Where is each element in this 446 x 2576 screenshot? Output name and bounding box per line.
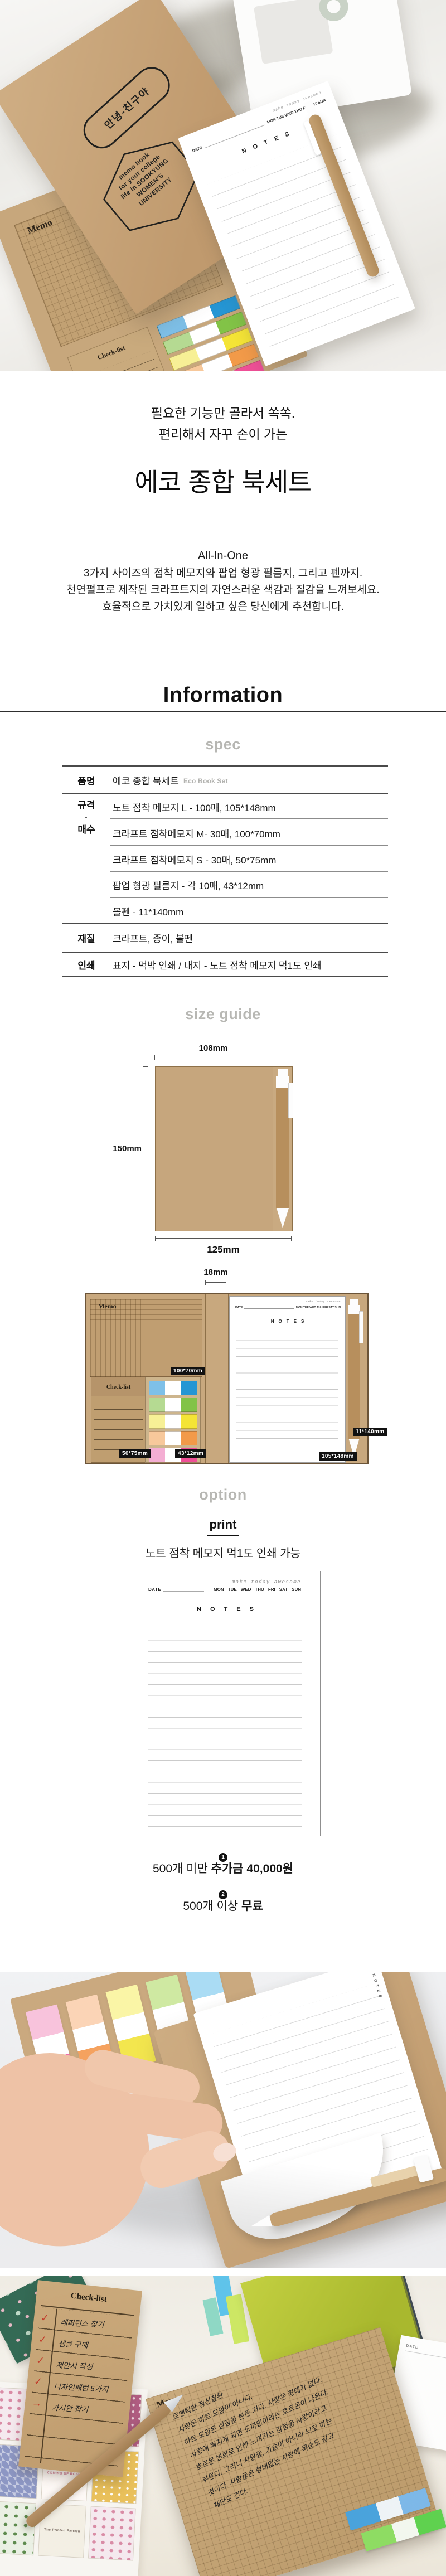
date-label: DATE — [192, 146, 203, 153]
flag-orange — [149, 1431, 197, 1445]
pricing-amount-2: 무료 — [241, 1900, 263, 1913]
spec-label-print: 인쇄 — [62, 958, 110, 972]
product-title: 에코 종합 북세트 — [0, 467, 446, 497]
spec-label-product: 품명 — [62, 773, 110, 787]
closed-book-diagram — [155, 1066, 293, 1231]
spec-size-row-5: 볼펜 - 11*140mm — [113, 904, 388, 918]
notes-title: NOTES — [230, 1319, 345, 1324]
size-tag-memo: 100*70mm — [171, 1367, 205, 1375]
desc-line-2: 천연펄프로 제작된 크라프트지의 자연스러운 색감과 질감을 느껴보세요. — [0, 582, 446, 599]
red-checkmark: ✓ — [38, 2334, 47, 2346]
hero-product-photo: Memo Check-list 안녕-친구야 — [0, 0, 446, 371]
red-checkmark: ✓ — [34, 2376, 42, 2388]
weekdays: MON TUE WED THU FRI SAT SUN — [296, 1306, 341, 1309]
notes-tagline: make today awesome — [306, 1300, 341, 1303]
size-tag-checklist: 50*75mm — [119, 1449, 151, 1458]
pen-slot-line — [347, 1294, 347, 1463]
table-subline — [110, 818, 388, 819]
table-subline — [110, 871, 388, 872]
preview-tagline: make today awesome — [232, 1579, 301, 1585]
table-line — [62, 765, 388, 767]
pricing-condition-1: 500개 미만 — [153, 1862, 211, 1875]
spec-size-row-4: 팝업 형광 필름지 - 각 10매, 43*12mm — [113, 878, 388, 892]
checklist-item: 제안서 작성 — [56, 2359, 93, 2371]
product-description: 3가지 사이즈의 점착 메모지와 팝업 형광 필름지, 그리고 펜까지. 천연펄… — [0, 565, 446, 615]
memo-pad-title: Memo — [26, 217, 54, 236]
memo-pad-title: Memo — [98, 1302, 117, 1311]
date-underline — [163, 1591, 204, 1592]
size-guide-heading: size guide — [0, 1006, 446, 1023]
desc-line-3: 효율적으로 가치있게 일하고 싶은 당신에게 추천합니다. — [0, 599, 446, 615]
date-label: DATE — [148, 1587, 161, 1592]
spec-size-row-3: 크라프트 점착메모지 S - 30매, 50*75mm — [113, 852, 388, 866]
product-name-en: Eco Book Set — [183, 777, 228, 785]
spec-size-row-2: 크라프트 점착메모지 M- 30매, 100*70mm — [113, 826, 388, 840]
date-label: DATE — [235, 1306, 243, 1309]
checklist-item: 샘플 구매 — [58, 2337, 88, 2350]
table-line — [62, 976, 388, 977]
weekday-tue: TUE — [228, 1587, 237, 1592]
product-detail-page: Memo Check-list 안녕-친구야 — [0, 0, 446, 2576]
desc-line-1: 3가지 사이즈의 점착 메모지와 팝업 형광 필름지, 그리고 펜까지. — [0, 565, 446, 582]
weekday-fri: FRI — [268, 1587, 275, 1592]
date-label: DATE — [406, 2344, 419, 2350]
pricing-badge-1: 1 — [0, 1851, 446, 1862]
preview-notes-title: NOTES — [130, 1606, 320, 1613]
notes-date-row: DATE MON TUE WED THU FRI SAT SUN — [235, 1306, 341, 1309]
spec-label-material: 재질 — [62, 931, 110, 945]
information-heading: Information — [0, 683, 446, 707]
pricing-line-2: 500개 이상 무료 — [0, 1899, 446, 1914]
print-preview-notepad: make today awesome DATE MON TUE WED THU … — [130, 1571, 321, 1836]
spec-subheading: spec — [0, 736, 446, 753]
option-heading: option — [0, 1486, 446, 1503]
notes-pad: make today awesome DATE MON TUE WED THU … — [229, 1296, 346, 1463]
table-subline — [110, 897, 388, 898]
notes-ruled-lines — [236, 1332, 338, 1447]
spec-value-material: 크라프트, 종이, 볼펜 — [113, 931, 388, 945]
option-description: 노트 점착 메모지 먹1도 인쇄 가능 — [0, 1544, 446, 1560]
print-subheading: print — [207, 1517, 240, 1536]
spec-label-size: 규격 · 매수 — [62, 799, 110, 836]
table-line — [62, 923, 388, 924]
weekday-sat: SAT — [279, 1587, 288, 1592]
pen-barrel — [348, 1314, 360, 1439]
flag-green — [149, 1398, 197, 1412]
spine-fold-line — [228, 1294, 229, 1463]
pricing-amount-1: 추가금 40,000원 — [211, 1862, 293, 1875]
dim-line-top — [154, 1057, 272, 1057]
flag-blue — [149, 1381, 197, 1395]
memo-grid-pad: Memo — [90, 1299, 202, 1377]
lifestyle-collage-photo: THE PRINTED SQUARE COMING UP ROSES The P… — [0, 2276, 446, 2576]
spec-value-print: 표지 - 먹박 인쇄 / 내지 - 노트 점착 메모지 먹1도 인쇄 — [113, 958, 388, 972]
flag-yellow — [149, 1414, 197, 1429]
red-checkmark: ✓ — [36, 2355, 45, 2366]
size-tag-notes: 105*148mm — [319, 1452, 357, 1461]
checklist-item: 레퍼런스 찾기 — [60, 2316, 104, 2330]
pen-tip — [276, 1208, 289, 1228]
table-subline — [110, 845, 388, 846]
pen-plunger — [348, 1305, 360, 1314]
open-book-diagram: Memo 100*70mm Check-list 50*75mm 43*12mm… — [85, 1293, 369, 1464]
pen-plunger — [350, 1299, 358, 1305]
pen-plunger — [276, 1076, 289, 1088]
pen-barrel — [276, 1088, 289, 1208]
spec-value-product: 에코 종합 북세트Eco Book Set — [113, 773, 388, 787]
dim-line-left — [146, 1066, 146, 1230]
print-subheading-wrap: print — [0, 1517, 446, 1536]
size-tag-pen: 11*140mm — [353, 1428, 387, 1436]
pricing-badge-2: 2 — [0, 1889, 446, 1899]
red-checkmark: ✓ — [41, 2312, 49, 2324]
catch-line-2: 편리해서 자꾸 손이 가는 — [0, 424, 446, 445]
pricing-line-1: 500개 미만 추가금 40,000원 — [0, 1862, 446, 1876]
spine-fold-line — [205, 1294, 206, 1463]
pen-plunger — [278, 1069, 288, 1076]
checklist-title: Check-list — [36, 2288, 142, 2308]
date-underline — [405, 2350, 446, 2361]
weekday-wed: WED — [241, 1587, 251, 1592]
preview-date-row: DATE MON TUE WED THU FRI SAT SUN — [148, 1587, 301, 1592]
dim-line-bottom — [155, 1238, 292, 1239]
weekday-mon: MON — [214, 1587, 224, 1592]
pen-clip — [359, 1311, 363, 1343]
checklist-pad-title: Check-list — [91, 1377, 146, 1396]
pattern-tile — [0, 2501, 36, 2555]
size-tag-flags: 43*12mm — [175, 1449, 206, 1458]
dim-width-bottom: 125mm — [155, 1244, 292, 1255]
preview-ruled-lines — [148, 1630, 302, 1828]
pen-slot — [273, 1067, 292, 1231]
product-subtitle: All-In-One — [0, 550, 446, 562]
pen-clip — [288, 1083, 293, 1118]
hand-flipping-photo: NOTES — [0, 1972, 446, 2268]
dim-height-left: 150mm — [103, 1144, 142, 1153]
weekday-sun: SUN — [292, 1587, 301, 1592]
pattern-tile — [88, 2506, 136, 2560]
checklist-item: 가시안 잡기 — [51, 2402, 89, 2414]
pricing-condition-2: 500개 이상 — [183, 1900, 241, 1913]
date-underline — [244, 1308, 294, 1309]
dim-spine: 18mm — [196, 1268, 235, 1277]
red-arrow-mark: → — [32, 2398, 42, 2409]
spec-table: 품명 에코 종합 북세트Eco Book Set 규격 · 매수 노트 점착 메… — [62, 765, 388, 977]
spec-size-row-1: 노트 점착 메모지 L - 100매, 105*148mm — [113, 800, 388, 814]
dim-width-top: 108mm — [154, 1044, 272, 1053]
checklist-column-line — [103, 1396, 103, 1459]
product-name-kr: 에코 종합 북세트 — [113, 776, 179, 787]
dim-line-spine — [205, 1282, 226, 1283]
table-line — [62, 952, 388, 953]
catch-line-1: 필요한 기능만 골라서 쏙쏙. — [0, 402, 446, 424]
weekday-thu: THU — [255, 1587, 264, 1592]
table-line — [62, 793, 388, 794]
section-divider — [0, 711, 446, 712]
intro-catchphrase: 필요한 기능만 골라서 쏙쏙. 편리해서 자꾸 손이 가는 — [0, 402, 446, 445]
